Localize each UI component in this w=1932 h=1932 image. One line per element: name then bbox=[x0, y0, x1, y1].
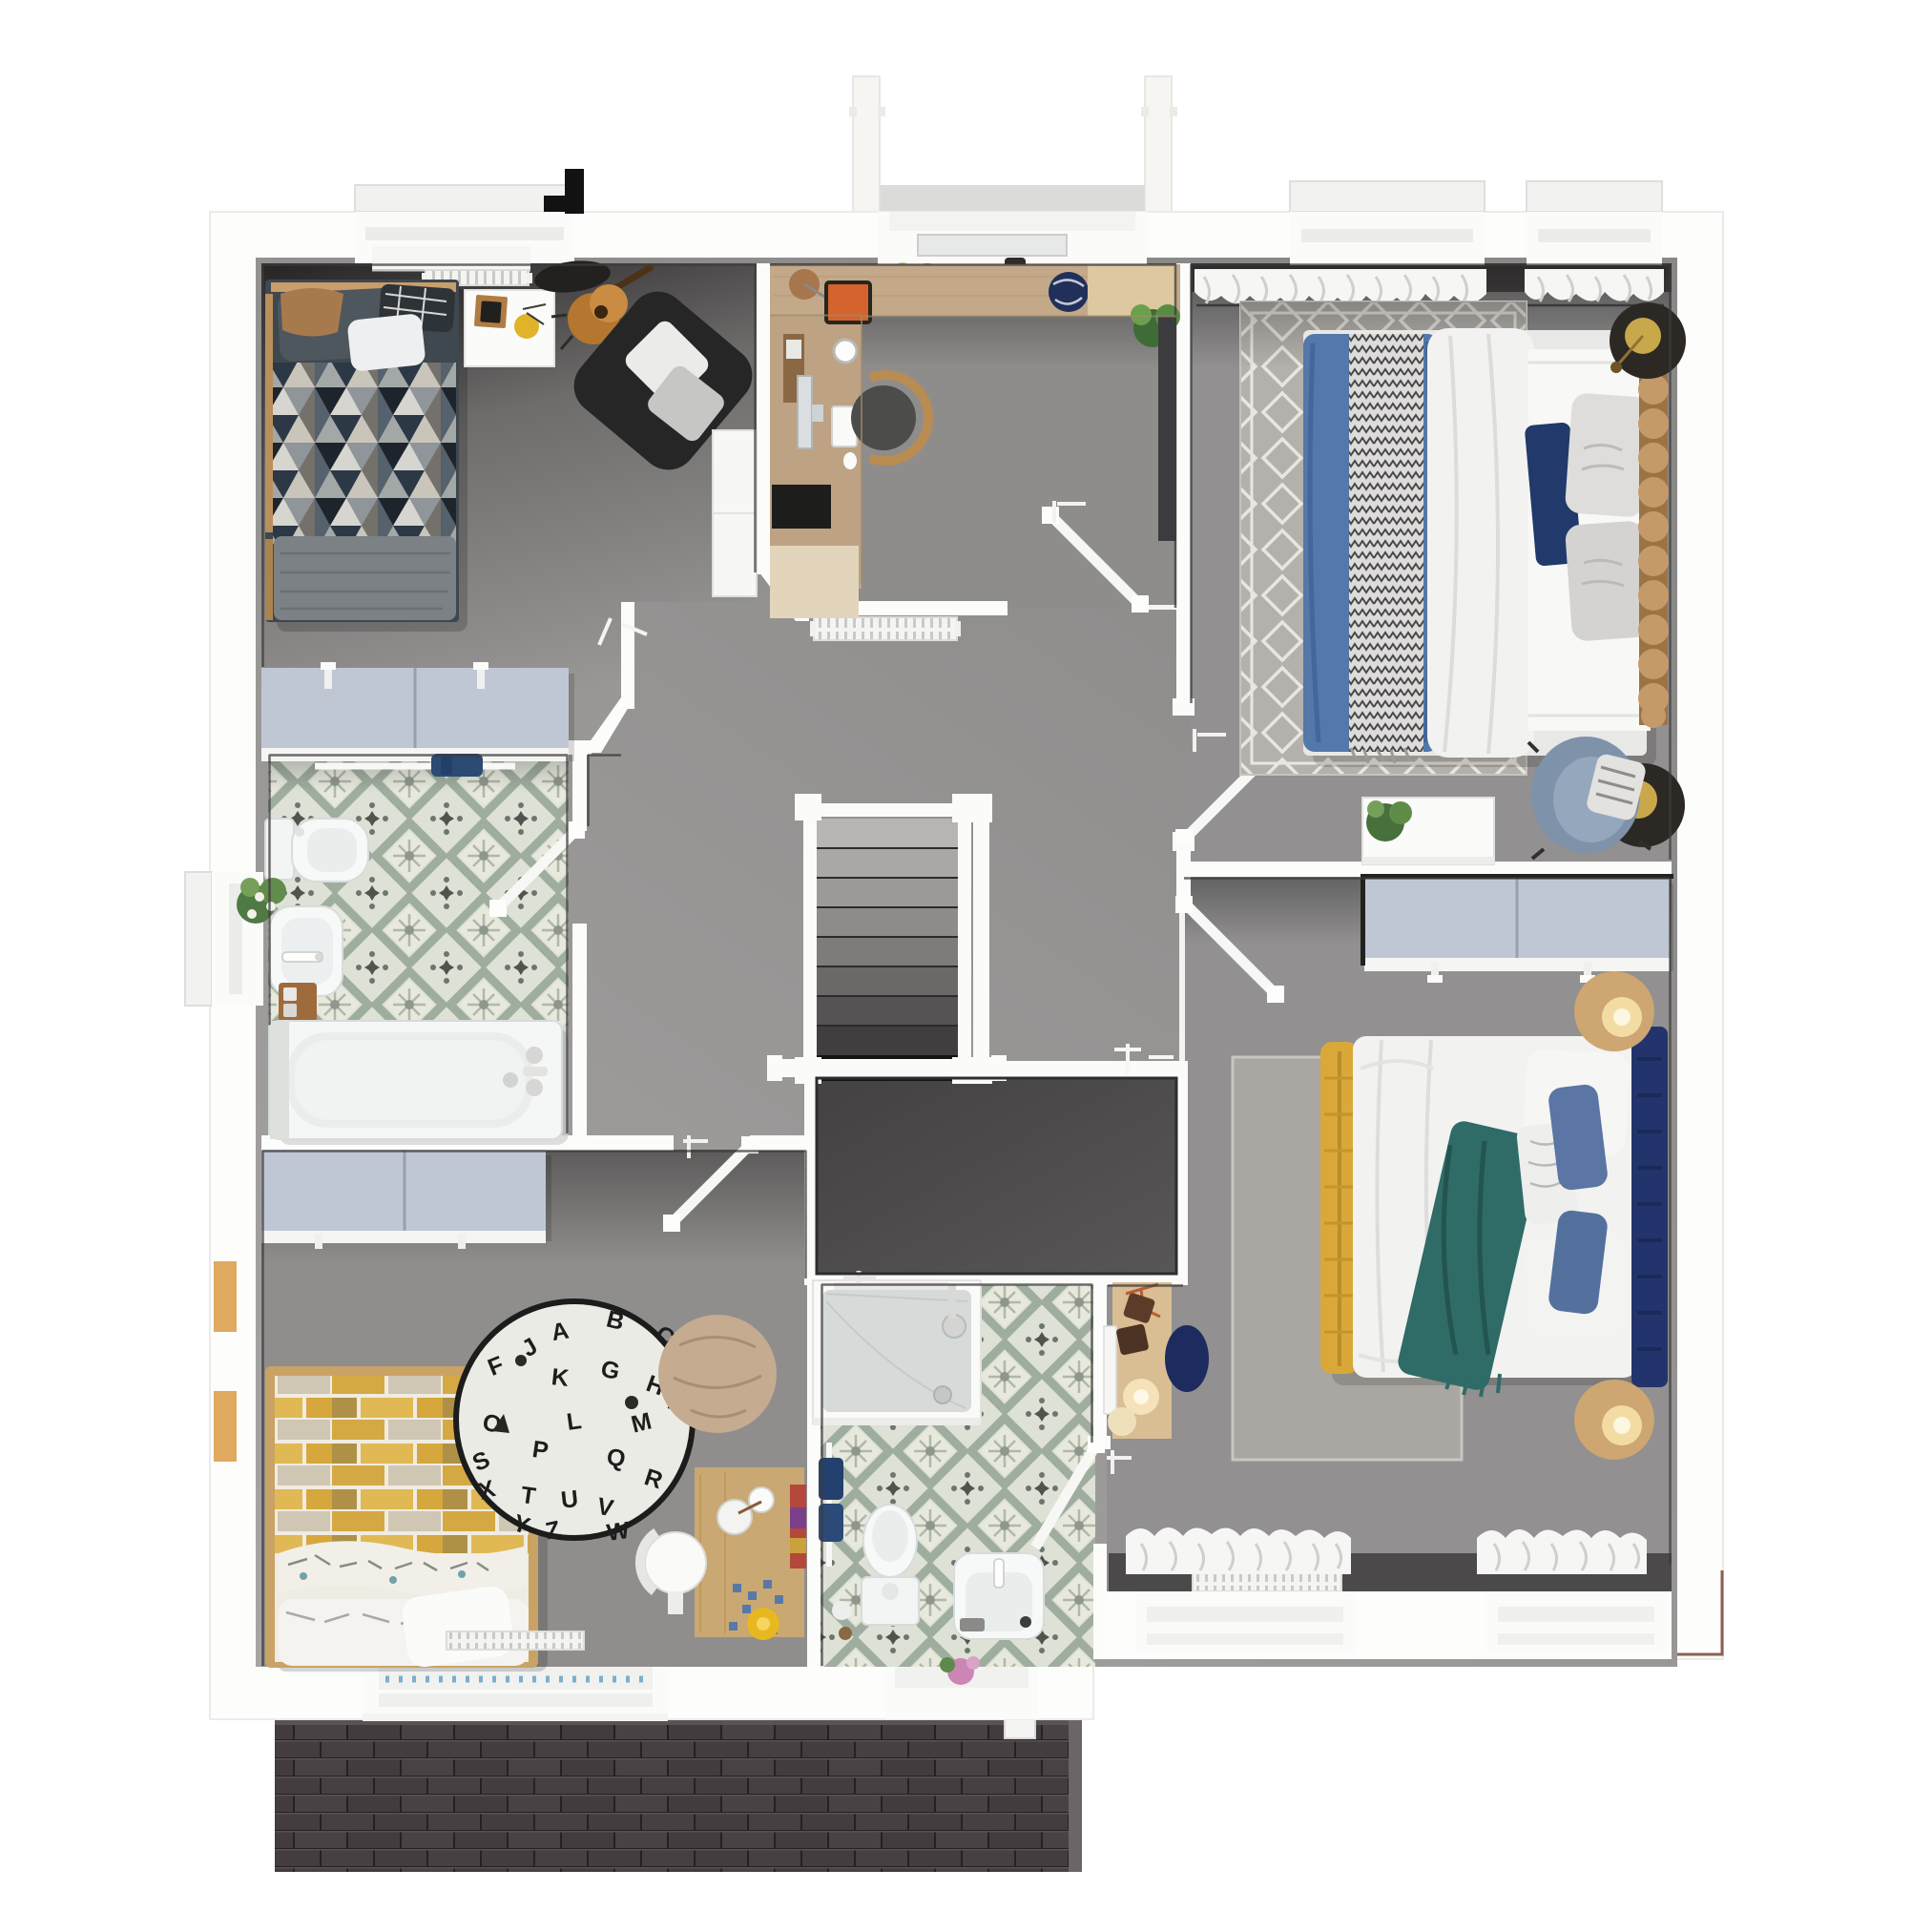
svg-text:K: K bbox=[551, 1363, 571, 1392]
svg-text:W: W bbox=[605, 1517, 632, 1547]
svg-text:U: U bbox=[560, 1485, 580, 1514]
